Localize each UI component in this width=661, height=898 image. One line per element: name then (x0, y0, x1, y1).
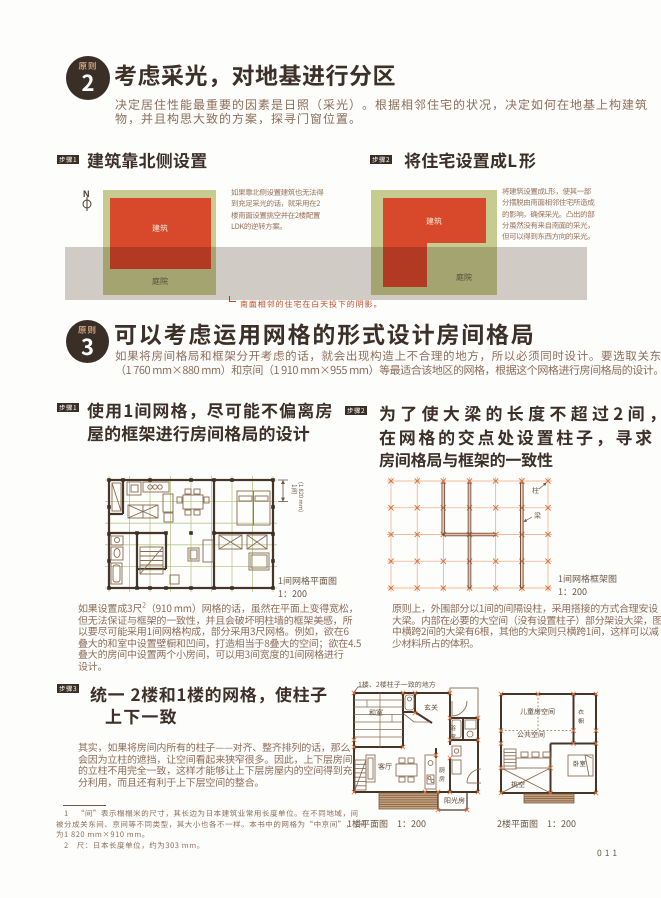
svg-text:公共空间: 公共空间 (517, 730, 545, 740)
svg-text:客厅: 客厅 (378, 762, 392, 772)
svg-text:挑空: 挑空 (511, 780, 525, 790)
svg-text:卧室: 卧室 (573, 758, 587, 768)
svg-text:儿童房空间: 儿童房空间 (520, 707, 555, 717)
svg-text:浴室: 浴室 (449, 723, 458, 741)
svg-text:玄关: 玄关 (424, 703, 438, 713)
svg-text:衣橱: 衣橱 (577, 707, 586, 725)
svg-text:厨房: 厨房 (438, 765, 447, 783)
svg-text:和室: 和室 (369, 708, 383, 718)
svg-text:阳光房: 阳光房 (444, 796, 465, 806)
